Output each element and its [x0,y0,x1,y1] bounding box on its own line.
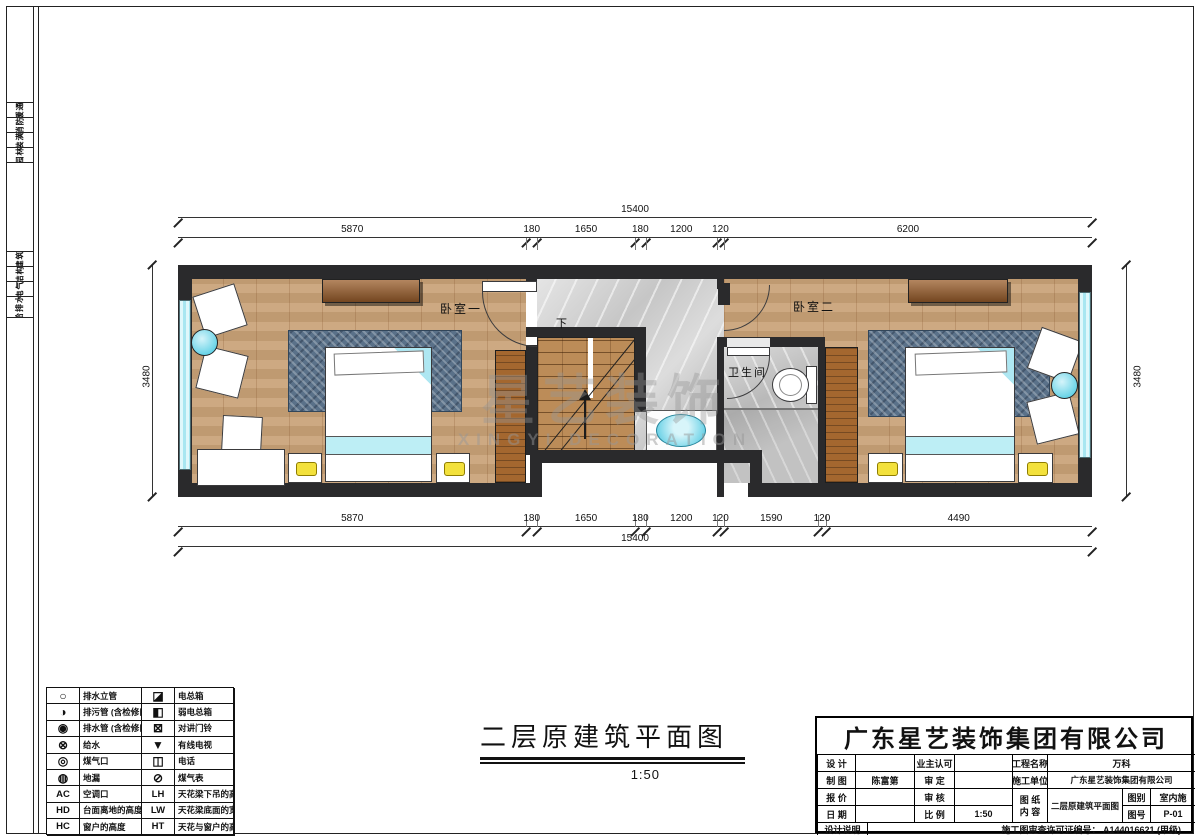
legend-symbol-icon: ○ [47,688,80,704]
legend-label: 台面离地的高度 [80,803,142,819]
legend-label: 电话 [175,754,235,770]
dim-value: 3480 [1133,357,1144,397]
approve-label: 审 定 [914,771,954,788]
discipline-cell: 装潢 [6,133,33,148]
bedroom2-wardrobe [825,347,858,483]
design-notes-label: 设计说明 [817,822,867,835]
dim-line [1126,265,1127,497]
legend-symbol-icon: ⊘ [142,770,175,786]
bedroom1-cabinet [322,279,420,303]
legend-label: 地漏 [80,770,142,786]
dim-line [178,217,1092,218]
dim-value: 120 [814,513,831,524]
legend-symbol-icon: ◧ [142,704,175,720]
legend-symbol-icon: ◑ [47,704,80,720]
builder-value: 广东星艺装饰集团有限公司 [1047,771,1195,788]
dim-value: 1200 [670,224,692,235]
discipline-strip: 暖通消防装潢园林建筑结构电气给排水 [6,6,34,834]
dimension-top-segments: 5870180165018012001206200 [178,222,1092,238]
legend-symbol-icon: HD [47,803,80,819]
dimension-top-total: 15400 [178,202,1092,218]
owner-approval-label: 业主认可 [914,754,954,771]
bedroom1-bed-pillow [334,350,425,375]
dim-value: 180 [632,513,649,524]
dim-value: 180 [523,224,540,235]
project-name-value: 万科 [1047,754,1195,771]
discipline-cell: 结构 [6,267,33,282]
category-label: 图别 [1122,788,1150,805]
bedroom1-side-table [191,329,218,356]
dim-extension-line [635,238,636,250]
bedroom1-bed [325,347,432,482]
legend-label: 天花梁下吊的高度 [175,786,235,802]
legend-label: 给水 [80,737,142,753]
discipline-cell-empty [6,163,33,252]
title-block: 广东星艺装饰集团有限公司 设 计 业主认可 工程名称 万科 制 图 陈富第 审 … [815,716,1193,833]
wall-bedroom1-hall [526,345,537,455]
dim-extension-line [724,238,725,250]
dimension-bottom-total: 15400 [178,531,1092,547]
dim-value: 120 [712,224,729,235]
legend-label: 排水立管 [80,688,142,704]
wall-bathroom-left [717,337,724,497]
legend-symbol-icon: HT [142,819,175,835]
legend-label: 弱电总箱 [175,704,235,720]
category-value: 室内施 [1150,788,1195,805]
discipline-cell-text: 装潢 [14,133,25,148]
dim-extension-line [537,238,538,250]
discipline-cell: 园林 [6,148,33,163]
window-right [1079,292,1091,458]
wall-stair-notch-left [530,450,542,497]
wash-basin [656,414,706,447]
dim-value: 1590 [760,513,782,524]
bedroom2-bed [905,347,1015,482]
wall-stair-top [526,327,646,337]
legend-symbol-icon: ◎ [47,754,80,770]
bathroom-door-leaf [727,347,770,356]
lamp-icon [444,462,465,476]
dim-value: 15400 [621,533,649,544]
toilet-bowl-inner [779,374,802,396]
discipline-cell: 消防 [6,118,33,133]
number-value: P-01 [1150,805,1195,822]
discipline-cell-text: 给排水 [14,297,25,318]
stair-direction-arrow-head [579,389,591,400]
discipline-cell-text: 暖通 [14,103,25,118]
bedroom2-label: 卧室二 [793,298,835,315]
dim-value: 15400 [621,204,649,215]
title-underline-thick [480,757,745,760]
lamp-icon [296,462,317,476]
dim-line [178,546,1092,547]
discipline-cell-text: 建筑 [14,252,25,267]
dim-value: 3480 [142,357,153,397]
discipline-cell-text: 结构 [14,267,25,282]
legend-symbol-icon: ▼ [142,737,175,753]
bedroom1-door-leaf [482,281,537,292]
legend-label: 窗户的高度 [80,819,142,835]
bedroom1-label: 卧室一 [440,300,482,317]
draft-value: 陈富第 [855,771,914,788]
dim-value: 120 [712,513,729,524]
bedroom2-bed-throw [906,436,1014,455]
design-value [855,754,914,771]
dim-value: 4490 [948,513,970,524]
legend-label: 空调口 [80,786,142,802]
project-name-label: 工程名称 [1012,754,1047,771]
discipline-cell-text: 电气 [14,282,25,297]
legend-symbol-icon: HC [47,819,80,835]
wall-stair-hall [635,337,646,412]
window-left [179,300,191,470]
lamp-icon [877,462,898,476]
check-label: 审 核 [914,788,954,805]
discipline-cell-text: 消防 [14,118,25,133]
legend-label: 有线电视 [175,737,235,753]
bedroom1-nightstand-right [436,453,470,483]
bathroom-door-opening [727,338,770,347]
dim-value: 180 [523,513,540,524]
dim-value: 5870 [341,224,363,235]
builder-label: 施工单位 [1012,771,1047,788]
wall-bathroom-right [818,337,825,497]
bedroom2-side-table [1051,372,1078,399]
scale-label: 比 例 [914,805,954,822]
legend-symbol-icon: ◍ [47,770,80,786]
check-value [954,788,1012,805]
wall-top [178,265,1092,279]
lamp-icon [1027,462,1048,476]
dim-extension-line [526,238,527,250]
dim-value: 180 [632,224,649,235]
discipline-cell: 电气 [6,282,33,297]
dim-value: 1650 [575,224,597,235]
approve-value [954,771,1012,788]
wall-stair-notch-top [530,450,762,463]
sheet-label-line2: 内 容 [1020,806,1041,818]
legend-symbol-icon: ⊗ [47,737,80,753]
stairs-down-label: 下 [556,315,569,331]
wall-stair-notch-right [750,450,762,497]
legend-label: 对讲门铃 [175,721,235,737]
drawing-title-text: 二层原建筑平面图 [480,717,745,754]
scale-value: 1:50 [954,805,1012,822]
legend-label: 煤气表 [175,770,235,786]
drawing-title: 二层原建筑平面图 1:50 [480,717,745,782]
dim-extension-line [717,238,718,250]
legend-label: 天花与窗户的高度 [175,819,235,835]
dimension-bottom-segments: 58701801650180120012015901204490 [178,511,1092,527]
discipline-cell: 暖通 [6,103,33,118]
legend-label: 煤气口 [80,754,142,770]
shower-area [724,410,818,483]
quote-value [855,788,914,805]
bedroom1-nightstand-left [288,453,322,483]
bathroom-label: 卫生间 [728,364,767,380]
permit-number: 施工图审查许可证编号： A144016621 (甲级) [867,822,1195,835]
legend-symbol-icon: ◉ [47,721,80,737]
dim-value: 6200 [897,224,919,235]
legend-label: 天花梁底面的宽度 [175,803,235,819]
stair-direction-arrow-shaft [584,399,586,439]
legend-symbol-icon: LH [142,786,175,802]
legend-symbol-icon: AC [47,786,80,802]
number-label: 图号 [1122,805,1150,822]
quote-label: 报 价 [817,788,855,805]
drawing-scale: 1:50 [480,767,745,782]
bedroom1-wardrobe [495,350,526,483]
legend-symbol-icon: ⊠ [142,721,175,737]
bedroom1-desk-chair [221,415,263,453]
legend-symbol-icon: LW [142,803,175,819]
legend-label: 排污管 (含检修口) [80,704,142,720]
dim-value: 1650 [575,513,597,524]
sheet-content-label: 图 纸 内 容 [1012,788,1047,822]
bedroom2-nightstand-right [1018,453,1053,483]
draft-label: 制 图 [817,771,855,788]
bedroom2-nightstand-left [868,453,903,483]
discipline-cell: 给排水 [6,297,33,318]
drawing-sheet: 暖通消防装潢园林建筑结构电气给排水 下 [0,0,1200,840]
legend-symbol-icon: ◫ [142,754,175,770]
bedroom2-cabinet [908,279,1008,303]
legend-symbol-icon: ◪ [142,688,175,704]
dim-value: 1200 [670,513,692,524]
date-value [855,805,914,822]
discipline-cell-empty [6,318,33,834]
sheet-label-line1: 图 纸 [1020,794,1041,806]
discipline-cell-text: 园林 [14,148,25,163]
legend-table: ○排水立管◪电总箱◑排污管 (含检修口)◧弱电总箱◉排水管 (含检修口)⊠对讲门… [46,687,234,835]
owner-approval-value [954,754,1012,771]
legend-label: 电总箱 [175,688,235,704]
bedroom1-desk [197,449,285,486]
discipline-cell-empty [6,6,33,103]
sheet-content-value: 二层原建筑平面图 [1047,788,1122,822]
company-name: 广东星艺装饰集团有限公司 [817,718,1195,754]
legend-label: 排水管 (含检修口) [80,721,142,737]
date-label: 日 期 [817,805,855,822]
dim-extension-line [646,238,647,250]
dim-value: 5870 [341,513,363,524]
title-underline-thin [480,762,745,764]
design-label: 设 计 [817,754,855,771]
bedroom2-bed-pillow [915,350,1008,375]
wall-bottom-right [748,483,1092,497]
discipline-cell: 建筑 [6,252,33,267]
sheet-frame-inner-line [38,6,39,834]
bedroom1-bed-throw [326,436,431,455]
